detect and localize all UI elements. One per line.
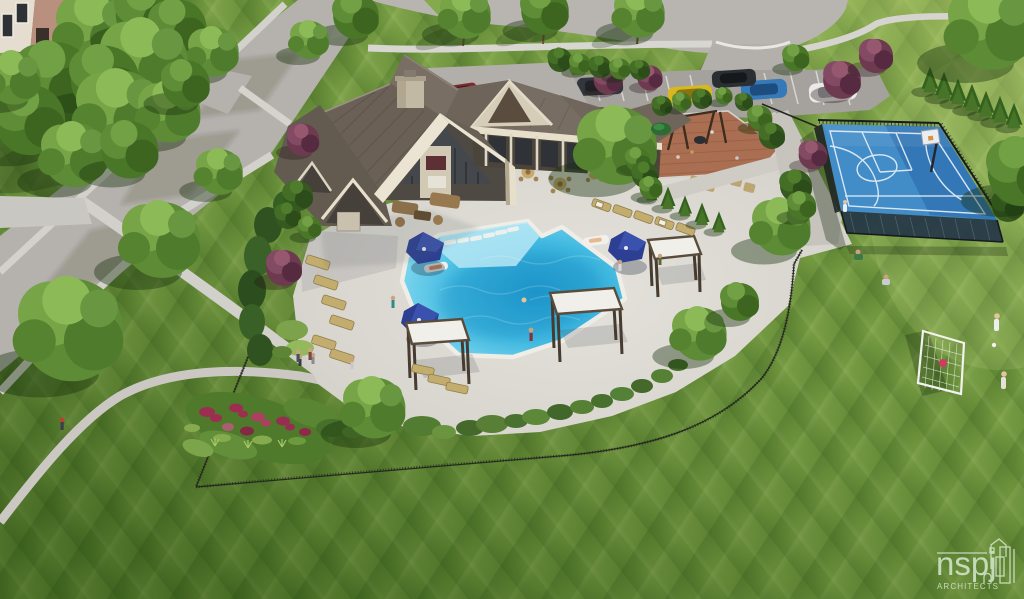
svg-text:ARCHITECTS: ARCHITECTS — [937, 582, 999, 591]
svg-text:nspj: nspj — [936, 545, 997, 582]
